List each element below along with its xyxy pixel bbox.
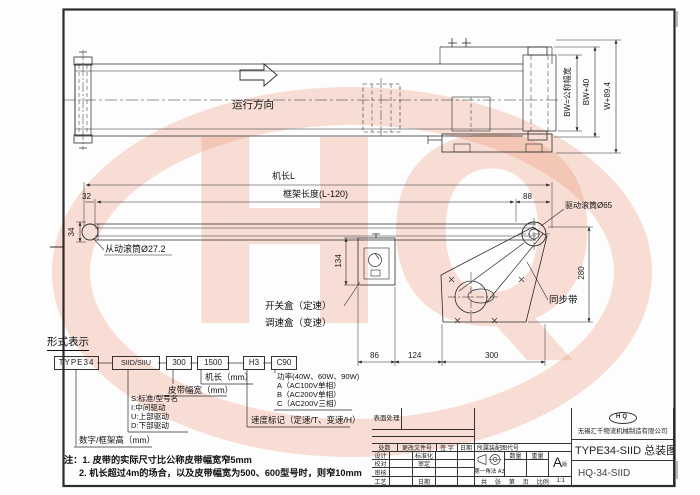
row-4-extra xyxy=(458,477,475,486)
sheet-no-unit: 页 xyxy=(523,477,529,486)
version-cell: A 版 xyxy=(549,452,572,477)
power-title: 功率(40W、60W、90W) xyxy=(277,372,359,381)
row-process-value xyxy=(390,477,413,486)
row-approval-value xyxy=(436,460,458,468)
run-direction-label: 运行方向 xyxy=(232,100,274,112)
drive-code-u: U:上部驱动 xyxy=(131,412,178,421)
power-c: C（AC200V三相） xyxy=(277,399,359,408)
model-code-heading: 形式表示 xyxy=(47,334,89,351)
row-1-extra xyxy=(458,452,475,460)
row-approval-label: 审定 xyxy=(413,460,436,468)
power-b: B（AC200V单相） xyxy=(277,390,359,399)
row-review-value xyxy=(390,468,413,477)
row-standardization-value xyxy=(436,452,458,460)
dim-86: 86 xyxy=(370,352,379,360)
drawing-number-cell: HQ-34-SIID xyxy=(572,461,674,486)
row-design-label: 设计 xyxy=(372,452,390,460)
sheet-total-label: 共 xyxy=(481,477,487,486)
dim-32: 32 xyxy=(82,193,91,201)
qty-header: 数量 xyxy=(505,452,527,460)
company-name: 无锡汇千物流机械制造有限公司 xyxy=(578,426,667,435)
revision-row-1 xyxy=(372,430,475,437)
dim-bw-label: BW=公称幅宽 xyxy=(564,67,572,117)
revision-row-2 xyxy=(372,437,475,444)
rev-header-date: 日期 xyxy=(458,444,475,452)
dim-34: 34 xyxy=(68,228,76,237)
sheet-no-label: 第 xyxy=(509,477,515,486)
projection-cell: 第一角法 A3 xyxy=(475,452,505,477)
company-logo: HQ xyxy=(609,412,637,424)
qty-value xyxy=(505,460,527,477)
surface-treatment-value xyxy=(402,408,475,430)
row-check-value xyxy=(390,460,413,468)
company-cell: HQ 无锡汇千物流机械制造有限公司 xyxy=(572,408,674,440)
title-block: 表面处理 处数 更改文件号 签 字 日期 设计 标准化 校对 审定 审核 工艺 … xyxy=(372,408,674,486)
frame-length-dim-label: 框架长度(L-120) xyxy=(283,190,348,200)
model-box-power: C90 xyxy=(271,356,297,370)
surface-treatment-label: 表面处理 xyxy=(372,408,402,430)
model-box-width: 300 xyxy=(166,356,192,370)
drive-code-i: I:中间驱动 xyxy=(131,403,178,412)
model-box-speed: H3 xyxy=(243,356,265,370)
drawing-title-cell: TYPE34-SIID 总装图 xyxy=(572,440,674,461)
dim-bw40-label: BW+40 xyxy=(583,79,591,105)
row-standardization-label: 标准化 xyxy=(413,452,436,460)
note-line-1: 注：1. 皮带的实际尺寸比公称皮带幅宽窄5mm xyxy=(64,452,252,466)
row-process-label: 工艺 xyxy=(372,477,390,486)
mid-top-empty xyxy=(475,408,572,444)
sync-belt-label: 同步带 xyxy=(549,296,578,306)
power-a: A（AC100V单相） xyxy=(277,381,359,390)
dim-280: 280 xyxy=(578,266,586,279)
note-line-2: 2. 机长超过4m的场合，以及皮带幅宽为500、600型号时，则窄10mm xyxy=(79,465,362,479)
drawing-sheet: HQ xyxy=(0,0,700,495)
label-drive-codes: S:标准/型号名 I:中间驱动 U:上部驱动 D:下部驱动 xyxy=(131,394,178,430)
label-speed-mark: 速度标记（定速/T、变速/H） xyxy=(251,416,361,425)
driven-roller-label: 从动滚筒Ø27.2 xyxy=(105,245,166,255)
row-date-value xyxy=(436,477,458,486)
projection-method-label: 第一角法 xyxy=(475,469,496,475)
dim-124: 124 xyxy=(408,352,421,360)
row-3-extra xyxy=(458,468,475,477)
version-letter: A xyxy=(553,452,562,472)
drive-code-d: D:下部驱动 xyxy=(131,421,178,430)
sheet-total-unit: 张 xyxy=(495,477,501,486)
model-box-type: TYPE34 xyxy=(54,356,99,370)
model-box-drive: SIID/SIIU xyxy=(112,356,160,370)
rev-header-sign: 签 字 xyxy=(437,444,458,452)
label-machine-length: 机长（mm） xyxy=(205,373,253,382)
model-box-length: 1500 xyxy=(197,356,229,370)
row-3-mid-value xyxy=(436,468,458,477)
drive-code-s: S:标准/型号名 xyxy=(131,394,178,403)
dim-88: 88 xyxy=(523,193,532,201)
row-2-extra xyxy=(458,460,475,468)
paper-size-label: A3 xyxy=(498,469,505,475)
rev-header-count: 处数 xyxy=(372,444,398,452)
row-review-label: 审核 xyxy=(372,468,390,477)
drive-roller-label: 驱动滚筒Ø65 xyxy=(565,202,612,211)
version-suffix: 版 xyxy=(562,454,567,476)
dim-134: 134 xyxy=(335,254,343,267)
dim-w894-label: W+89.4 xyxy=(604,82,612,110)
sheet-scale-row: 共 张 第 页 比例 1:1 xyxy=(475,477,572,486)
speed-box-label: 调速盒（变速） xyxy=(265,319,332,329)
rev-header-docno: 更改文件号 xyxy=(398,444,437,452)
row-date-label: 日期 xyxy=(413,477,436,486)
switch-box-label: 开关盒（定速） xyxy=(265,302,332,312)
weight-header: 重量 xyxy=(527,452,549,460)
machine-length-dim-label: 机长L xyxy=(272,172,295,182)
assembly-code-label: 所属装配图代号 xyxy=(475,444,572,452)
label-frame-height: 数字/框架高（mm） xyxy=(79,436,155,445)
row-check-label: 校对 xyxy=(372,460,390,468)
scale-label: 比例 xyxy=(537,477,549,486)
row-design-value xyxy=(390,452,413,460)
row-3-mid xyxy=(413,468,436,477)
first-angle-projection-icon xyxy=(476,453,504,466)
dim-300: 300 xyxy=(485,352,498,360)
weight-value xyxy=(527,460,549,477)
scale-value: 1:1 xyxy=(557,478,565,484)
label-power-options: 功率(40W、60W、90W) A（AC100V单相） B（AC200V单相） … xyxy=(277,372,359,408)
